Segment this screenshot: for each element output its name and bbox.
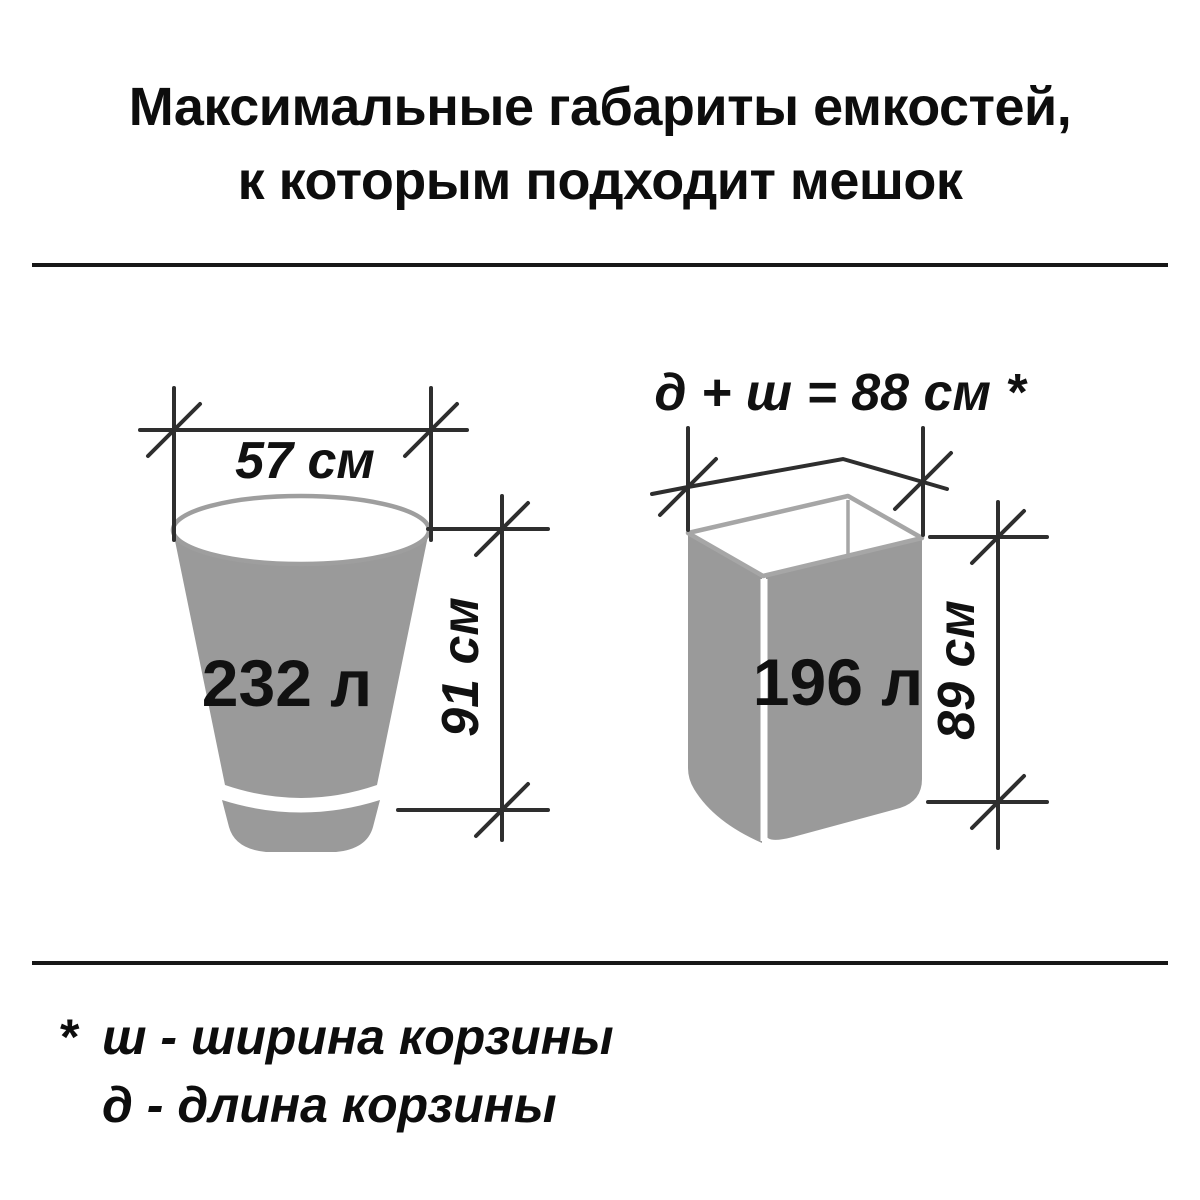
infographic-page: Максимальные габариты емкостей, к которы…: [0, 0, 1200, 1200]
bucket-opening: [173, 496, 429, 564]
bucket-base: [222, 800, 380, 852]
bucket-width-label: 57 см: [235, 432, 375, 490]
bottom-divider-line: [32, 961, 1168, 965]
footnote-line-2: д - длина корзины: [60, 1071, 614, 1139]
top-divider-line: [32, 263, 1168, 267]
footnote: * ш - ширина корзины д - длина корзины: [60, 1003, 614, 1139]
box-top-formula-label: д + ш = 88 см *: [654, 364, 1028, 422]
title-line-1: Максимальные габариты емкостей,: [0, 70, 1200, 144]
footnote-line-1: * ш - ширина корзины: [60, 1003, 614, 1071]
dimensions-diagram: 57 см 91 см 232 л: [0, 350, 1200, 870]
footnote-length-definition: д - длина корзины: [102, 1071, 557, 1139]
box-figure: д + ш = 88 см * 89 см 196 л: [652, 364, 1047, 848]
footnote-indent-spacer: [60, 1071, 102, 1139]
footnote-asterisk: *: [60, 1003, 102, 1071]
bucket-figure: 57 см 91 см 232 л: [140, 388, 548, 852]
page-title: Максимальные габариты емкостей, к которы…: [0, 70, 1200, 218]
bucket-volume-label: 232 л: [202, 646, 372, 720]
title-line-2: к которым подходит мешок: [0, 144, 1200, 218]
box-volume-label: 196 л: [753, 645, 923, 719]
bucket-height-label: 91 см: [432, 597, 490, 737]
box-height-label: 89 см: [928, 600, 986, 740]
footnote-width-definition: ш - ширина корзины: [102, 1003, 614, 1071]
box-left-face: [688, 533, 762, 843]
